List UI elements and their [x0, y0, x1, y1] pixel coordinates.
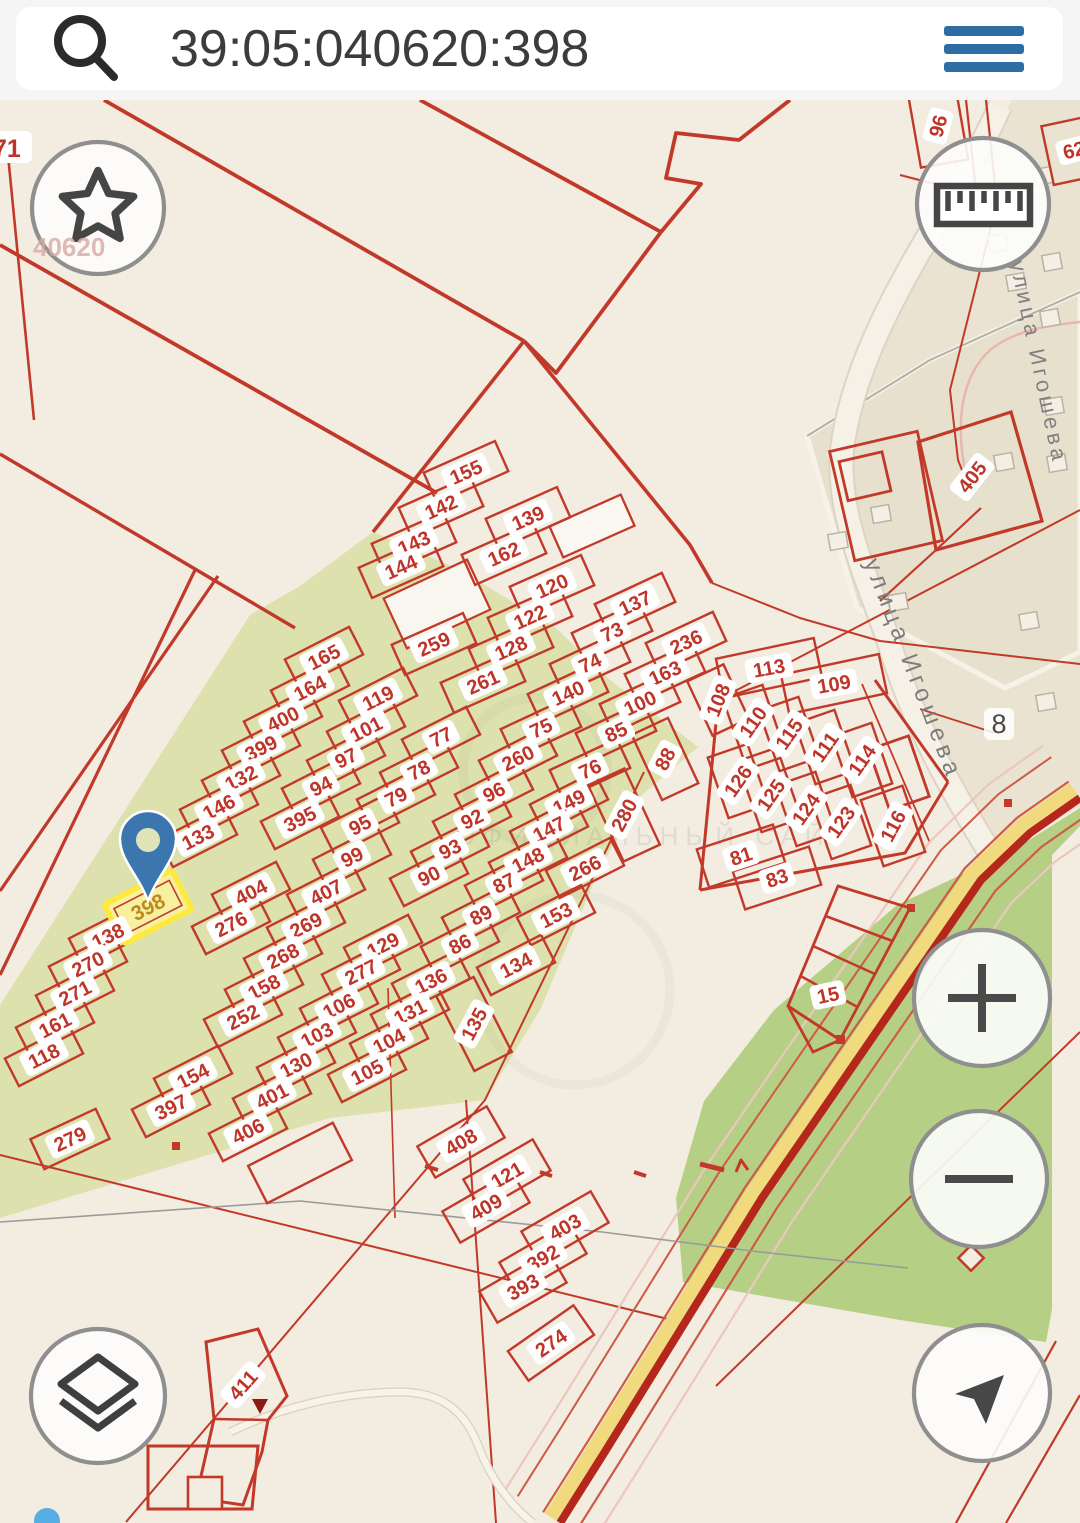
svg-text:71: 71 [0, 135, 21, 163]
svg-text:39:05:040620:398: 39:05:040620:398 [170, 20, 589, 78]
svg-text:8: 8 [991, 709, 1006, 739]
svg-text:40620: 40620 [33, 232, 105, 262]
svg-text:15: 15 [815, 983, 841, 1009]
